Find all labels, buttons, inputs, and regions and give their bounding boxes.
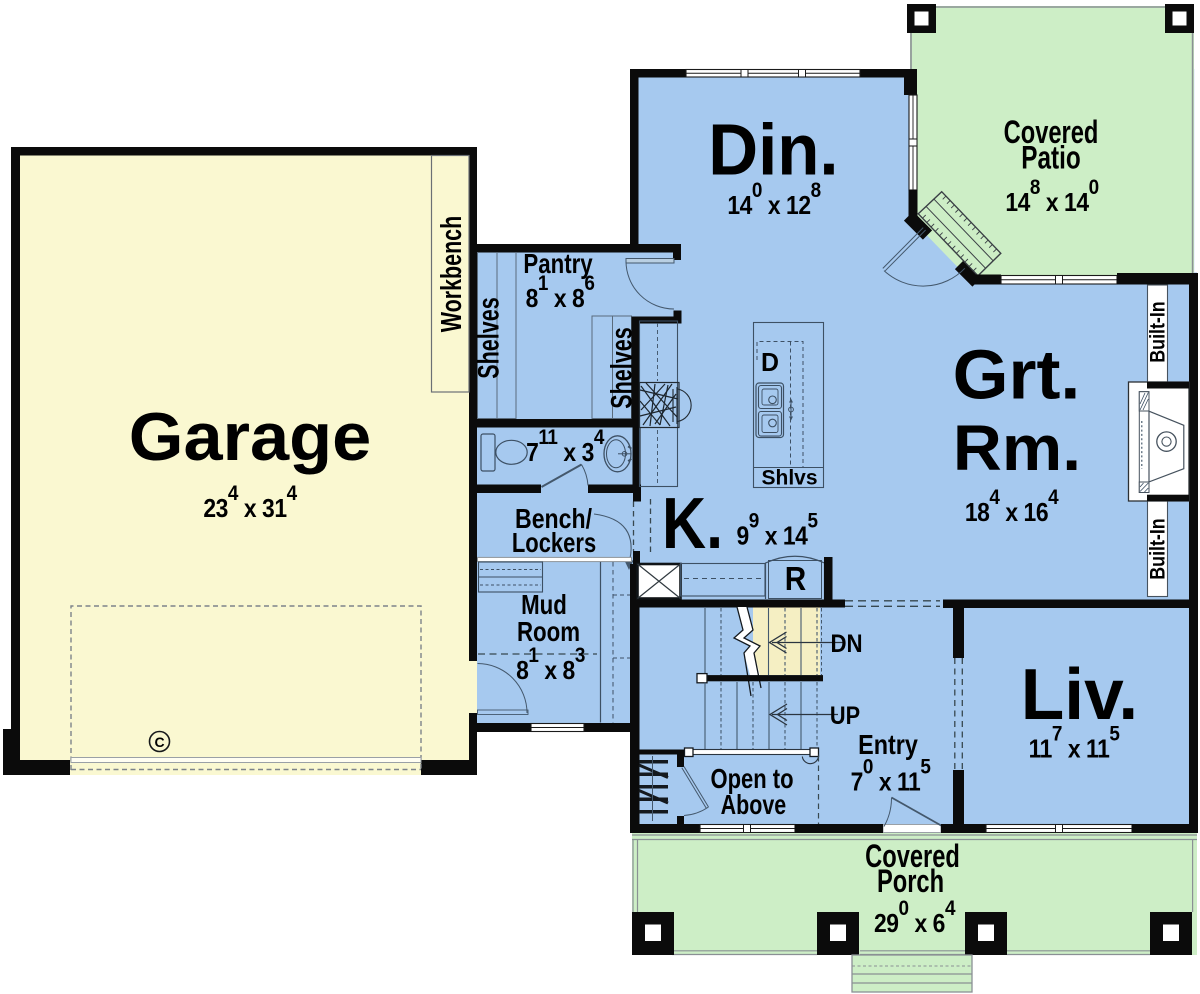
svg-text:Liv.: Liv. [1021,654,1138,735]
svg-text:Rm.: Rm. [953,412,1081,484]
svg-text:R: R [785,561,807,598]
svg-text:Shlvs: Shlvs [761,467,817,490]
svg-text:C: C [154,734,164,750]
svg-text:Shelves: Shelves [471,297,505,379]
svg-text:Patio: Patio [1021,140,1080,176]
svg-text:Room: Room [517,617,580,648]
svg-text:Porch: Porch [877,864,944,899]
svg-text:D: D [761,348,779,377]
svg-text:Garage: Garage [129,398,372,475]
svg-text:UP: UP [830,702,860,730]
svg-text:K.: K. [662,483,723,564]
svg-text:Built-In: Built-In [1146,518,1170,579]
svg-text:DN: DN [830,631,862,658]
svg-text:Built-In: Built-In [1146,301,1170,362]
svg-text:Grt.: Grt. [953,336,1081,414]
svg-text:Above: Above [721,791,787,821]
svg-text:Pantry: Pantry [523,249,592,280]
svg-text:Lockers: Lockers [512,528,596,559]
svg-text:Workbench: Workbench [436,216,468,332]
